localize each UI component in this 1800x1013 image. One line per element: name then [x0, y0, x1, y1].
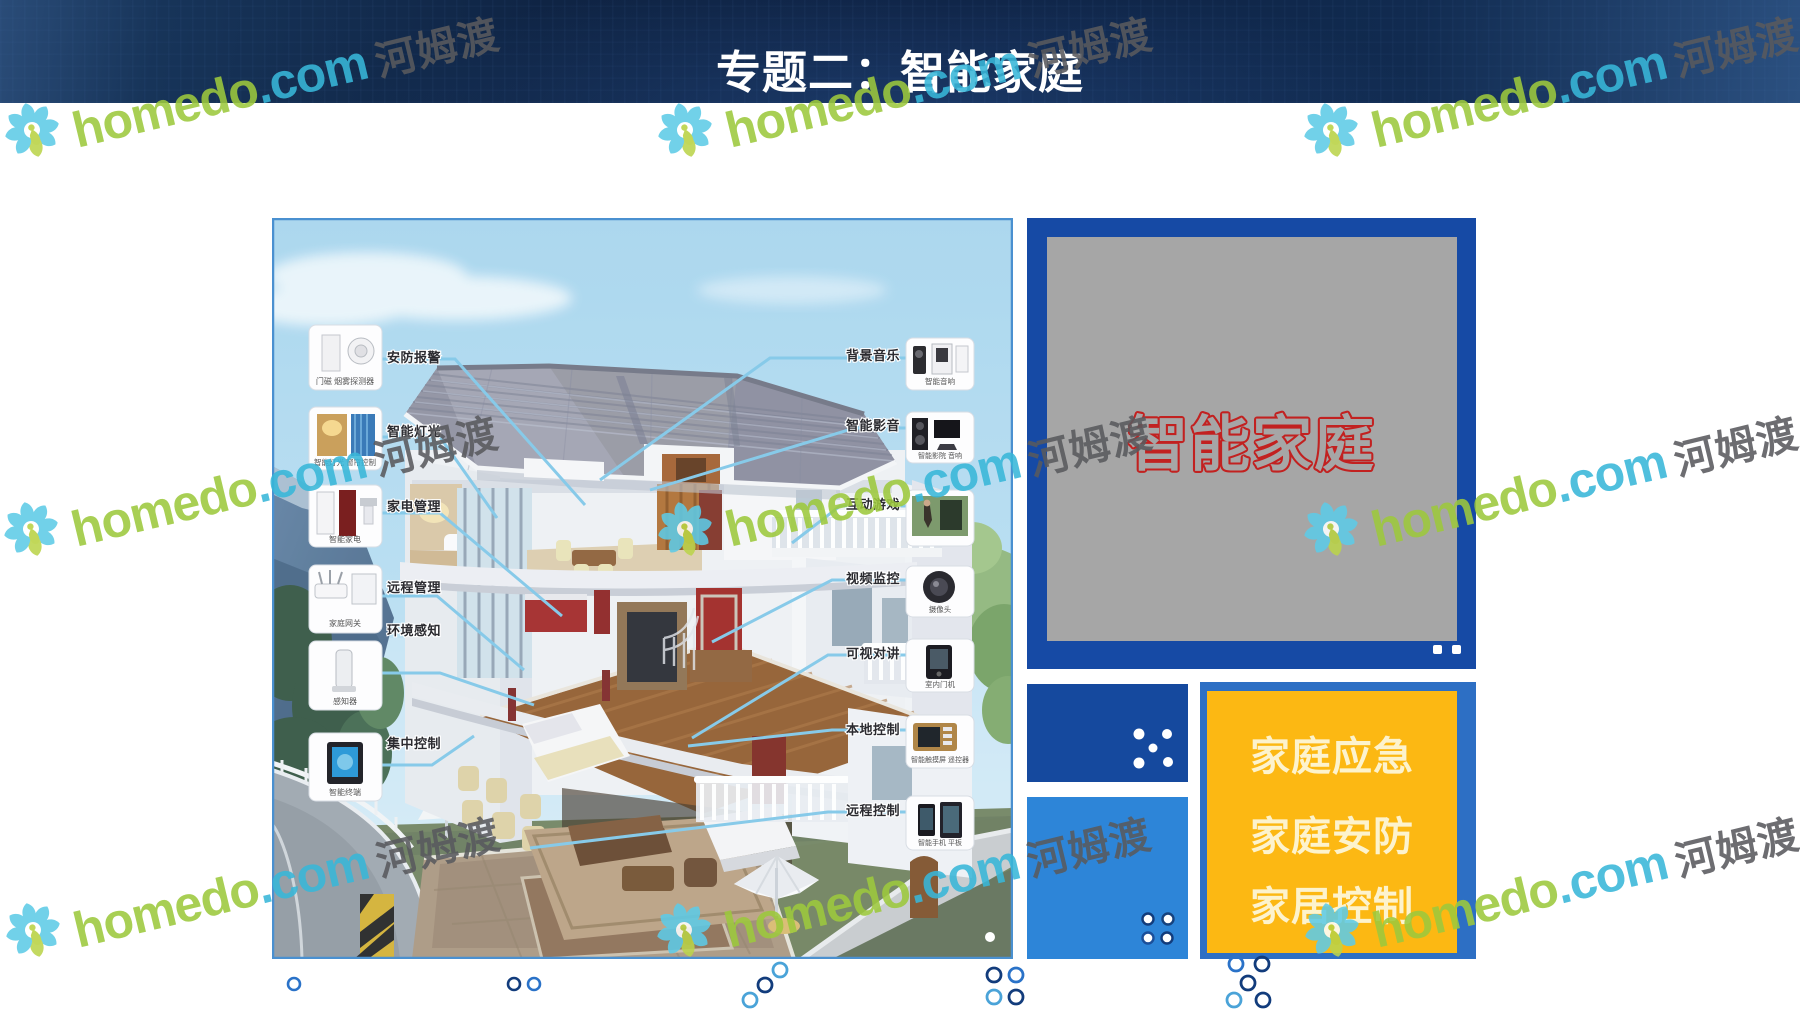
svg-text:互动游戏: 互动游戏	[846, 497, 900, 512]
svg-text:远程控制: 远程控制	[846, 803, 900, 818]
svg-text:摄像头: 摄像头	[929, 604, 952, 614]
svg-text:背景音乐: 背景音乐	[846, 348, 900, 363]
svg-text:智能家电: 智能家电	[329, 534, 361, 544]
svg-text:智能影院 音响: 智能影院 音响	[918, 451, 962, 460]
svg-text:家电管理: 家电管理	[387, 499, 441, 514]
svg-text:智能触摸屏 遥控器: 智能触摸屏 遥控器	[911, 755, 969, 764]
svg-text:智能终端: 智能终端	[329, 787, 361, 797]
svg-text:智能音响: 智能音响	[925, 376, 955, 386]
svg-text:智能手机 平板: 智能手机 平板	[918, 838, 962, 847]
svg-text:感知器: 感知器	[333, 696, 357, 706]
svg-text:智能灯光: 智能灯光	[387, 424, 441, 439]
svg-text:安防报警: 安防报警	[387, 350, 441, 365]
svg-text:家庭网关: 家庭网关	[329, 618, 361, 628]
svg-text:环境感知: 环境感知	[387, 623, 441, 638]
svg-text:智能影音: 智能影音	[846, 418, 900, 433]
svg-text:智能家庭: 智能家庭	[1128, 411, 1376, 478]
svg-text:智能灯光 窗帘控制: 智能灯光 窗帘控制	[314, 457, 376, 467]
svg-text:门磁 烟雾探测器: 门磁 烟雾探测器	[316, 376, 374, 386]
svg-text:本地控制: 本地控制	[846, 722, 900, 737]
svg-text:视频监控: 视频监控	[846, 571, 900, 586]
svg-text:集中控制: 集中控制	[386, 736, 441, 751]
svg-text:远程管理: 远程管理	[387, 580, 441, 595]
svg-text:可视对讲: 可视对讲	[846, 646, 900, 661]
svg-text:室内门机: 室内门机	[925, 679, 955, 689]
